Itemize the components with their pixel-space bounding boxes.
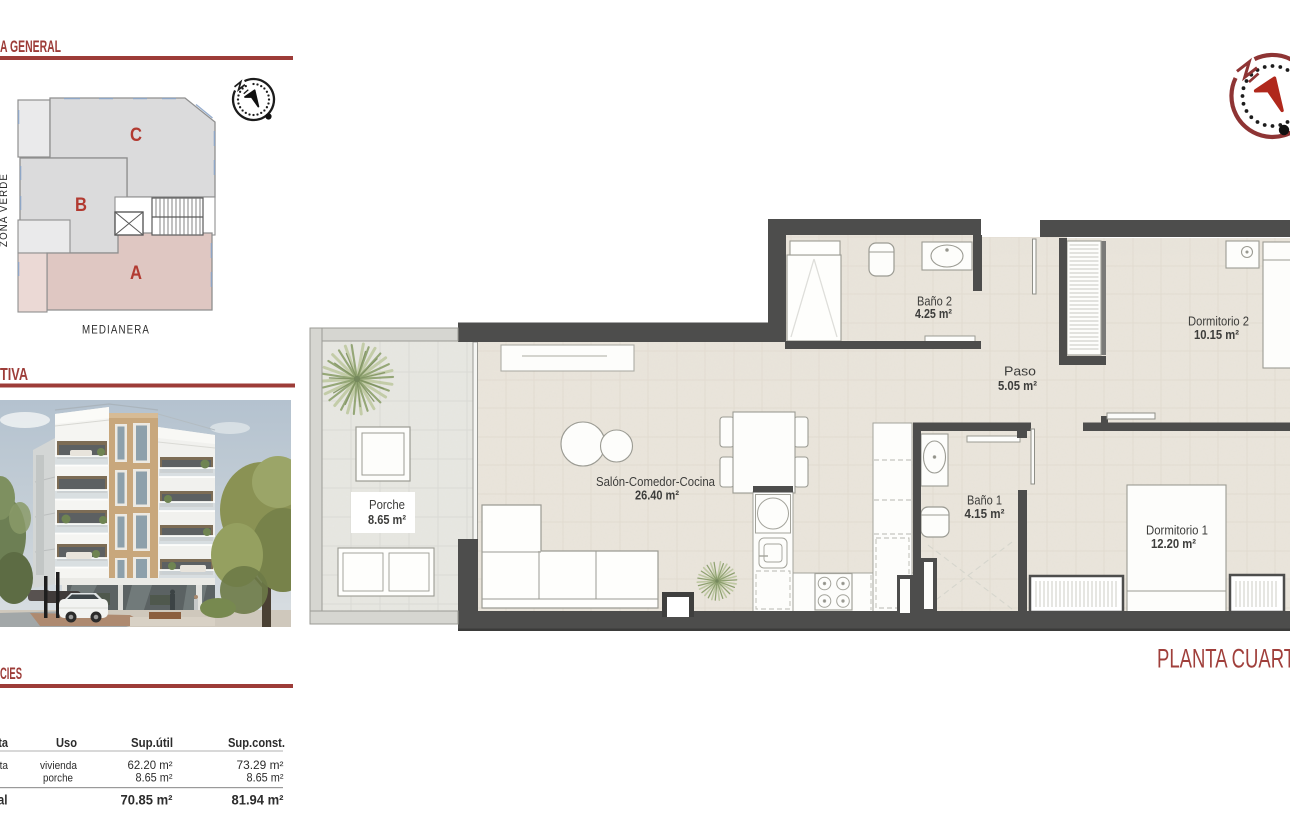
svg-text:Sup.útil: Sup.útil [131,736,173,750]
svg-text:A: A [130,263,142,284]
svg-text:4.15 m²: 4.15 m² [965,507,1005,521]
svg-text:Uso: Uso [56,736,77,750]
svg-text:cuarta: cuarta [0,760,9,772]
svg-text:Sup.const.: Sup.const. [228,736,285,750]
svg-text:8.65 m²: 8.65 m² [136,773,173,785]
svg-text:8.65 m²: 8.65 m² [368,513,406,527]
svg-text:8.65 m²: 8.65 m² [247,773,284,785]
svg-text:5.05 m²: 5.05 m² [998,379,1037,393]
svg-text:CIES: CIES [0,665,22,683]
svg-text:4.25 m²: 4.25 m² [915,307,952,321]
svg-text:Total: Total [0,793,8,808]
svg-text:Porche: Porche [369,498,405,512]
svg-text:Baño 1: Baño 1 [967,494,1002,508]
svg-text:26.40 m²: 26.40 m² [635,488,680,503]
svg-text:ZONA VERDE: ZONA VERDE [0,173,10,247]
svg-text:12.20 m²: 12.20 m² [1151,536,1197,551]
svg-text:MEDIANERA: MEDIANERA [82,325,150,337]
svg-text:C: C [130,125,142,146]
svg-text:B: B [75,195,87,216]
svg-text:10.15 m²: 10.15 m² [1194,327,1240,342]
svg-text:PLANTA CUARTA: PLANTA CUARTA [1157,644,1290,674]
svg-text:TIVA: TIVA [0,364,28,384]
svg-text:vivienda: vivienda [40,760,78,772]
svg-text:porche: porche [43,773,73,785]
svg-text:62.20 m²: 62.20 m² [128,760,173,772]
svg-text:Planta: Planta [0,736,9,750]
svg-text:73.29 m²: 73.29 m² [237,760,284,772]
svg-text:Paso: Paso [1004,365,1036,379]
svg-text:A GENERAL: A GENERAL [0,38,61,56]
svg-text:81.94 m²: 81.94 m² [232,793,284,808]
svg-text:70.85 m²: 70.85 m² [121,793,173,808]
